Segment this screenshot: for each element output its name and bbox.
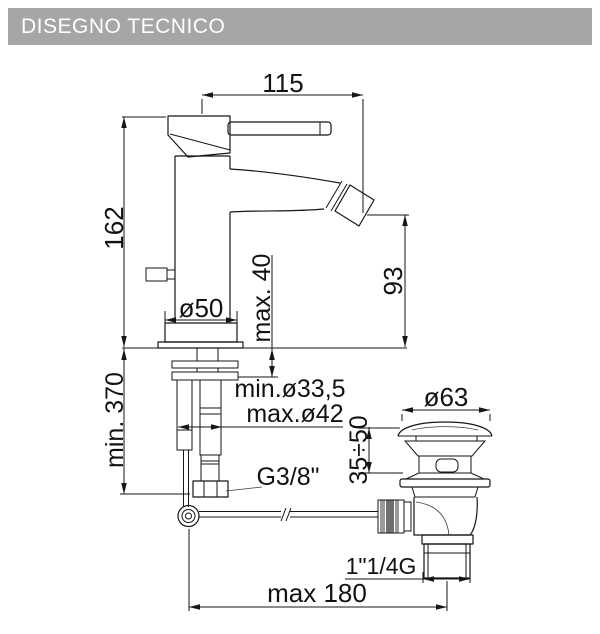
side-pin xyxy=(146,268,175,281)
dim-mounting-hole: min.ø33,5 max.ø42 xyxy=(178,375,346,430)
dim-93-label: 93 xyxy=(378,267,408,296)
dim-max40-label: max. 40 xyxy=(248,254,276,343)
drain-cap xyxy=(398,422,492,441)
dim-g38-label: G3/8" xyxy=(256,463,319,491)
dim-deck-thickness: max. 40 xyxy=(238,254,278,377)
mounting-hardware xyxy=(172,348,238,380)
dim-supply-thread: G3/8" xyxy=(226,463,320,491)
drain-tailpiece xyxy=(422,535,473,578)
drain-spool xyxy=(400,441,490,487)
base-plate xyxy=(158,323,243,348)
dim-d50-label: ø50 xyxy=(179,293,224,323)
faucet-head xyxy=(168,116,230,157)
dim-spout-height: 93 xyxy=(367,215,409,347)
drain-body xyxy=(412,487,478,535)
technical-drawing-page: DISEGNO TECNICO xyxy=(0,0,600,634)
rod-connector-knurled xyxy=(378,500,411,533)
dim-162-label: 162 xyxy=(99,206,129,249)
dim-115-label: 115 xyxy=(262,68,303,98)
technical-drawing: 115 162 min. 370 93 xyxy=(0,0,600,634)
dim-drain-diameter: ø63 xyxy=(402,382,490,421)
hose-nut xyxy=(193,481,228,497)
dim-370-label: min. 370 xyxy=(101,372,129,468)
dim-d63-label: ø63 xyxy=(424,382,469,412)
dim-max180-label: max 180 xyxy=(267,578,367,608)
dim-3550-label: 35÷50 xyxy=(345,415,373,484)
dim-hole-min-label: min.ø33,5 xyxy=(234,375,345,403)
dim-base-diameter: ø50 xyxy=(165,293,237,323)
ball-joint xyxy=(178,506,199,527)
dim-114g-label: 1"1/4G xyxy=(346,553,417,579)
dim-hole-max-label: max.ø42 xyxy=(246,400,343,428)
faucet-handle xyxy=(228,122,331,135)
aerator xyxy=(335,185,374,226)
dim-drain-clamp: 35÷50 xyxy=(345,415,403,484)
supply-hose-braided xyxy=(193,380,228,497)
dim-total-height: 162 xyxy=(99,117,166,347)
faucet-spout xyxy=(230,169,374,226)
dim-spout-reach: 115 xyxy=(202,68,363,213)
supply-hose xyxy=(177,380,192,450)
